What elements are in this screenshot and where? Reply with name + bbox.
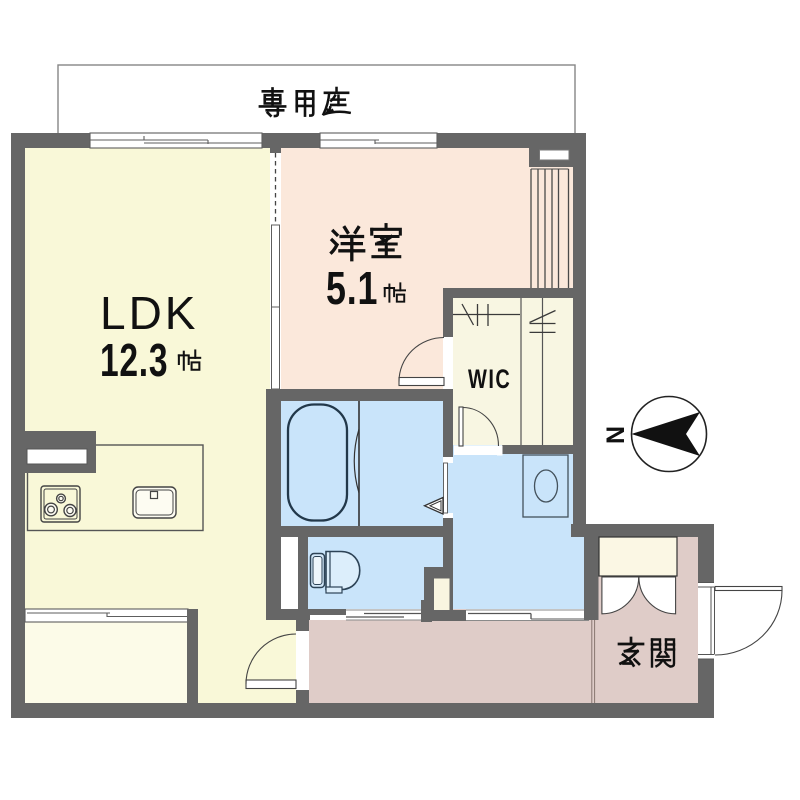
svg-text:N: N — [602, 426, 630, 444]
svg-text:LDK: LDK — [100, 287, 198, 339]
svg-text:WIC: WIC — [468, 364, 511, 395]
svg-text:12.3: 12.3 — [100, 335, 168, 386]
svg-text:5.1: 5.1 — [326, 263, 378, 314]
